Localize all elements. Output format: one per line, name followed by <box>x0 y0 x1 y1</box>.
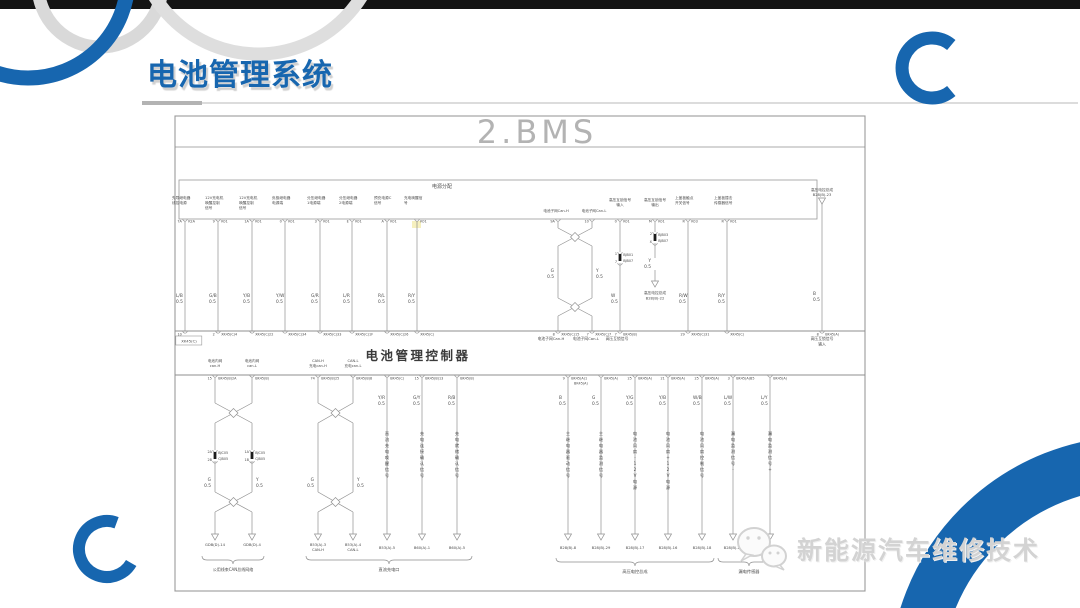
offpage-connector-icon <box>819 198 826 204</box>
diagram-label: 先导继电器 <box>172 195 191 200</box>
twisted-pair-cross <box>229 409 238 418</box>
diagram-label: Y/R <box>377 395 385 401</box>
diagram-label: BJB07 <box>658 239 668 243</box>
offpage-connector-icon <box>212 534 219 540</box>
diagram-label: 0 <box>615 220 617 224</box>
diagram-label: XK45(C)26 <box>390 333 408 337</box>
diagram-label: G/B <box>209 293 217 299</box>
twisted-pair-cross <box>331 498 340 507</box>
diagram-label: 电池管理控制器 <box>365 348 470 363</box>
diagram-label: E <box>347 220 349 224</box>
diagram-label: 分压继电器 <box>339 195 358 200</box>
diagram-label: 2A <box>208 450 213 454</box>
diagram-label: 0.5 <box>176 299 183 305</box>
diagram-label: Y <box>595 268 599 274</box>
group-brace <box>556 558 714 566</box>
diagram-label: 0.5 <box>693 401 700 407</box>
diagram-label: 15 <box>207 377 211 381</box>
diagram-label: Y/G <box>625 395 633 401</box>
diagram-label: BK45(A) <box>671 377 686 381</box>
diagram-label: 1电源端 <box>307 200 321 205</box>
offpage-connector-icon <box>665 534 672 540</box>
diagram-label: 传感器信号 <box>714 200 733 205</box>
diagram-label: 7 <box>615 260 617 264</box>
diagram-label: R/Y <box>718 293 725 299</box>
diagram-label: 0.5 <box>378 299 385 305</box>
diagram-label: B53(A)-4 <box>345 543 362 547</box>
diagram-label: K01 <box>390 220 397 224</box>
diagram-label: 0.5 <box>611 299 618 305</box>
twisted-pair-cross <box>571 233 580 242</box>
diagram-label: 0.5 <box>448 401 455 407</box>
diagram-label: 25 <box>627 377 631 381</box>
diagram-label: XK45(C)1F <box>355 333 373 337</box>
diagram-label: 7 <box>615 333 617 337</box>
diagram-label: 唤醒控制 <box>205 200 220 205</box>
diagram-label: R/L <box>378 293 385 299</box>
diagram-label: GDB(D)-14 <box>205 543 226 547</box>
diagram-label: BK45(A) <box>638 377 653 381</box>
diagram-label: 0.5 <box>256 483 263 489</box>
diagram-label: 15 <box>414 377 418 381</box>
offpage-connector-icon <box>699 534 706 540</box>
diagram-label: 漏电监测信号- <box>731 430 736 472</box>
diagram-label: 漏电监测信号+ <box>768 430 773 472</box>
diagram-label: 0.5 <box>644 264 651 270</box>
connector-pin <box>213 450 217 452</box>
diagram-label: B28(B)-23 <box>813 193 832 197</box>
diagram-label: 0.5 <box>378 401 385 407</box>
diagram-label: 电源分配 <box>432 183 452 190</box>
diagram-label: XK45(C)22 <box>255 333 273 337</box>
diagram-label: B53(A)-5 <box>379 546 396 550</box>
diagram-label: L/W <box>724 395 733 401</box>
diagram-label: XK45(C)4 <box>221 333 237 337</box>
diagram-label: 充电就绪确认信号 <box>455 430 460 479</box>
diagram-label: 10 <box>177 333 181 337</box>
diagram-label: 0.5 <box>547 274 554 280</box>
diagram-label: 高压电控总成 <box>622 568 647 575</box>
diagram-label: K01 <box>255 220 262 224</box>
diagram-label: W/B <box>693 395 702 401</box>
diagram-label: 0.5 <box>276 299 283 305</box>
diagram-label: 2.BMS <box>477 113 597 151</box>
diagram-label: 12V充电机 <box>239 195 258 200</box>
diagram-label: 0.5 <box>761 401 768 407</box>
offpage-connector-icon <box>384 534 391 540</box>
diagram-label: 高压互锁信号 <box>811 336 834 341</box>
diagram-label: 电源端 <box>272 200 283 205</box>
diagram-label: XK45(C) <box>420 333 435 337</box>
diagram-label: CAN-L <box>347 548 359 552</box>
diagram-label: W <box>611 293 616 299</box>
diagram-label: 电池子网Can-H <box>543 208 569 213</box>
diagram-label: 0.5 <box>813 297 820 303</box>
diagram-label: CAN-H <box>312 359 324 363</box>
diagram-label: B28(B)-8 <box>560 546 577 550</box>
watermark: 新能源汽车维修技术 <box>733 524 1040 574</box>
diagram-label: 21 <box>660 377 664 381</box>
diagram-label: 公用线束CAN总线网络 <box>213 566 254 572</box>
diagram-label: BJB07 <box>623 259 633 263</box>
diagram-label: 0.5 <box>343 299 350 305</box>
diagram-label: 0.5 <box>679 299 686 305</box>
diagram-label: 充电can-L <box>345 363 362 368</box>
offpage-connector-icon <box>598 534 605 540</box>
diagram-label: 2B <box>208 458 213 462</box>
diagram-label: 分压继电器 <box>307 195 326 200</box>
diagram-label: can-H <box>210 364 221 368</box>
diagram-label: 高压电控总成 <box>644 290 666 295</box>
group-brace <box>202 556 264 564</box>
offpage-connector-icon <box>454 534 461 540</box>
offpage-connector-icon <box>315 534 322 540</box>
diagram-label: 信号 <box>205 205 213 210</box>
twisted-pair-cross <box>331 409 340 418</box>
diagram-label: BK45(A) <box>825 333 840 337</box>
group-brace <box>306 556 472 564</box>
diagram-label: 10 <box>584 220 588 224</box>
diagram-label: 电池风扇-12V电源 <box>633 430 638 491</box>
diagram-label: 0.5 <box>626 401 633 407</box>
diagram-label: B28(B)-17 <box>626 546 645 550</box>
diagram-label: 上盖板触点 <box>675 195 694 200</box>
offpage-connector-icon <box>249 534 256 540</box>
diagram-label: 高压互锁信号 <box>644 197 666 202</box>
diagram-label: BK45(B)13 <box>425 377 443 381</box>
diagram-label: 3 <box>315 220 317 224</box>
diagram-label: 0.5 <box>559 401 566 407</box>
diagram-label: BJC05 <box>255 451 265 455</box>
diagram-label: 直流充电口 <box>379 566 400 573</box>
diagram-label: 电池子网Can-L <box>573 336 600 341</box>
diagram-label: 0.5 <box>243 299 250 305</box>
diagram-label: 7 <box>587 333 589 337</box>
diagram-label: 1A <box>244 220 249 224</box>
diagram-label: 输入 <box>818 342 826 347</box>
diagram-label: 0 <box>280 220 282 224</box>
diagram-label: XK45(C)7 <box>595 333 611 337</box>
diagram-label: CAN-L <box>348 359 359 363</box>
diagram-label: 0.5 <box>311 299 318 305</box>
diagram-label: G <box>208 477 211 483</box>
diagram-label: Y/W <box>275 293 285 299</box>
diagram-label: XK45(C)31 <box>691 333 709 337</box>
diagram-label: K01 <box>288 220 295 224</box>
diagram-label: 充电can-H <box>309 363 327 368</box>
diagram-label: R/W <box>679 293 688 299</box>
diagram-label: B <box>559 395 562 401</box>
diagram-label: G <box>551 268 554 274</box>
diagram-label: R <box>682 220 685 224</box>
diagram-label: L/R <box>343 293 350 299</box>
diagram-label: 1 <box>615 252 617 256</box>
diagram-label: Y <box>356 477 360 483</box>
diagram-label: K01 <box>221 220 228 224</box>
diagram-label: B60(A)-1 <box>414 546 430 550</box>
diagram-label: Y/B <box>658 395 666 401</box>
diagram-label: G <box>311 477 314 483</box>
diagram-label: CAN-H <box>312 548 324 552</box>
diagram-label: 0.5 <box>718 299 725 305</box>
diagram-label: Y/B <box>242 293 250 299</box>
diagram-label: 9A <box>550 220 555 224</box>
diagram-label: XK45(C) <box>181 339 197 344</box>
diagram-label: CJB05 <box>255 457 265 461</box>
diagram-label: 信号 <box>374 200 382 205</box>
diagram-label: 0.5 <box>357 483 364 489</box>
diagram-label: K03 <box>691 220 698 224</box>
diagram-label: B28(B)-22 <box>646 297 665 301</box>
diagram-label: K01 <box>355 220 362 224</box>
diagram-label: 输出 <box>651 202 659 207</box>
diagram-label: 0.5 <box>209 299 216 305</box>
diagram-label: BK45(A) <box>604 377 619 381</box>
diagram-label: 唤醒控制 <box>239 200 254 205</box>
diagram-label: BJB03 <box>658 233 668 237</box>
diagram-label: 0.5 <box>204 483 211 489</box>
offpage-connector-icon <box>632 534 639 540</box>
diagram-label: B53(A)-3 <box>310 543 327 547</box>
diagram-label: A <box>381 220 384 224</box>
diagram-label: BK45(B) <box>255 377 270 381</box>
diagram-label: 12V充电机 <box>205 195 224 200</box>
diagram-label: 上盖板撞击 <box>714 195 733 200</box>
diagram-label: 号 <box>404 200 408 205</box>
connector-pin <box>618 252 622 254</box>
diagram-label: Y <box>255 477 259 483</box>
diagram-label: BK45(A)1 <box>571 377 587 381</box>
diagram-label: G <box>592 395 595 401</box>
diagram-label: 电池风扇+12V电源 <box>666 430 671 491</box>
diagram-label: 电池内网 <box>208 358 223 363</box>
diagram-label: Y <box>647 258 651 264</box>
diagram-label: 主继电器监测信号 <box>599 430 604 479</box>
diagram-label: 开关信号 <box>675 200 690 205</box>
diagram-label: R <box>721 220 724 224</box>
twisted-pair-cross <box>571 303 580 312</box>
diagram-label: 电池子网Can-H <box>538 336 565 341</box>
diagram-label: 充电唤醒信 <box>404 195 423 200</box>
diagram-label: 0.5 <box>724 401 731 407</box>
diagram-label: 1B <box>245 458 250 462</box>
diagram-label: BK45(B) <box>460 377 475 381</box>
diagram-box <box>175 116 865 591</box>
diagram-label: 主继电器驱动信号 <box>566 430 571 479</box>
diagram-label: BK45(C) <box>390 377 405 381</box>
diagram-label: 高压互锁信号 <box>609 197 631 202</box>
watermark-text: 新能源汽车维修技术 <box>797 531 1040 567</box>
diagram-label: 电池内网 <box>245 358 260 363</box>
diagram-label: BK45(A) <box>705 377 720 381</box>
diagram-label: K01 <box>658 220 665 224</box>
diagram-label: B28(B)-16 <box>659 546 678 550</box>
diagram-label: can-L <box>247 364 257 368</box>
twisted-pair-cross <box>229 498 238 507</box>
diagram-label: 2 <box>650 232 652 236</box>
diagram-label: BK45(A) <box>574 382 589 386</box>
diagram-label: 3 <box>728 377 730 381</box>
diagram-label: 9 <box>563 377 565 381</box>
diagram-label: K01 <box>420 220 427 224</box>
diagram-label: BJB01 <box>623 253 633 257</box>
diagram-label: 直流充电唤醒信号 <box>385 430 390 479</box>
diagram-label: 8 <box>553 333 555 337</box>
diagram-label: BK45(B)8 <box>356 377 372 381</box>
diagram-label: BJC05 <box>218 451 228 455</box>
diagram-label: XK45(C) <box>730 333 745 337</box>
diagram-label: 74 <box>310 377 314 381</box>
diagram-label: 2电源端 <box>339 200 353 205</box>
diagram-label: G/R <box>311 293 319 299</box>
diagram-label: K01 <box>323 220 330 224</box>
inline-connector <box>654 234 657 241</box>
diagram-label: B60(A)-5 <box>449 546 466 550</box>
diagram-label: BK45(B)2A <box>218 377 237 381</box>
diagram-label: K01 <box>730 220 737 224</box>
inline-connector <box>619 254 622 261</box>
diagram-label: CJB05 <box>218 457 228 461</box>
diagram-label: 预充电源C <box>374 195 392 200</box>
offpage-connector-icon <box>419 534 426 540</box>
offpage-connector-icon <box>350 534 357 540</box>
diagram-label: B28(B)-18 <box>693 546 712 550</box>
diagram-label: 0.5 <box>659 401 666 407</box>
diagram-label: BK45(B)25 <box>321 377 339 381</box>
diagram-label: 9 <box>213 220 215 224</box>
diagram-label: XK45(C)34 <box>288 333 306 337</box>
diagram-label: 8 <box>817 333 819 337</box>
diagram-label: K2A <box>188 220 195 224</box>
diagram-label: 充电连接确认信号 <box>420 430 425 479</box>
diagram-label: M <box>649 220 652 224</box>
diagram-label: B28(B)-29 <box>592 546 611 550</box>
diagram-label: 0.5 <box>413 401 420 407</box>
diagram-label: 1A <box>245 450 250 454</box>
diagram-label: XK45(C)15 <box>561 333 579 337</box>
diagram-label: 高压电控总成 <box>811 187 833 192</box>
diagram-label: GDB(D)-4 <box>243 543 261 547</box>
diagram-label: 负极继电器 <box>272 195 291 200</box>
diagram-label: 高压互锁信号 <box>606 336 629 341</box>
diagram-label: 0.5 <box>592 401 599 407</box>
diagram-label: L/B <box>176 293 183 299</box>
diagram-label: X <box>650 240 653 244</box>
bms-wiring-diagram: 2.BMS电源分配电池管理控制器XK45(C)电池子网Can-H电池子网Can-… <box>0 0 1080 608</box>
diagram-label: 输入 <box>616 202 624 207</box>
diagram-label: 25 <box>694 377 698 381</box>
diagram-label: 2 <box>213 333 215 337</box>
diagram-label: K01 <box>623 220 630 224</box>
diagram-label: R/Y <box>408 293 415 299</box>
inline-connector <box>214 452 217 459</box>
diagram-label: 0.5 <box>307 483 314 489</box>
diagram-label: 电池子网Can-L <box>582 208 607 213</box>
diagram-label: 线控电源 <box>172 200 187 205</box>
connector-pin <box>653 232 657 234</box>
diagram-label: BK45(A) <box>773 377 788 381</box>
wechat-logo-icon <box>733 524 791 574</box>
diagram-label: BK45(A)B5 <box>736 377 754 381</box>
diagram-label: 0.5 <box>596 274 603 280</box>
offpage-connector-icon <box>565 534 572 540</box>
diagram-label: R/B <box>448 395 455 401</box>
slide: { "slide": { "title": "电池管理系统", "waterma… <box>0 0 1080 608</box>
diagram-label: 29 <box>680 333 684 337</box>
diagram-label: BK45(B) <box>623 333 638 337</box>
diagram-label: 7A <box>177 220 182 224</box>
connector-pin <box>250 450 254 452</box>
inline-connector <box>251 452 254 459</box>
diagram-label: L/Y <box>761 395 768 401</box>
diagram-label: 信号 <box>239 205 247 210</box>
diagram-label: B <box>813 291 816 297</box>
diagram-label: 0.5 <box>408 299 415 305</box>
offpage-connector-icon <box>652 281 659 287</box>
diagram-label: 电池风扇控制信号 <box>700 430 705 479</box>
diagram-label: G/Y <box>413 395 421 401</box>
diagram-label: XK45(C)33 <box>323 333 341 337</box>
